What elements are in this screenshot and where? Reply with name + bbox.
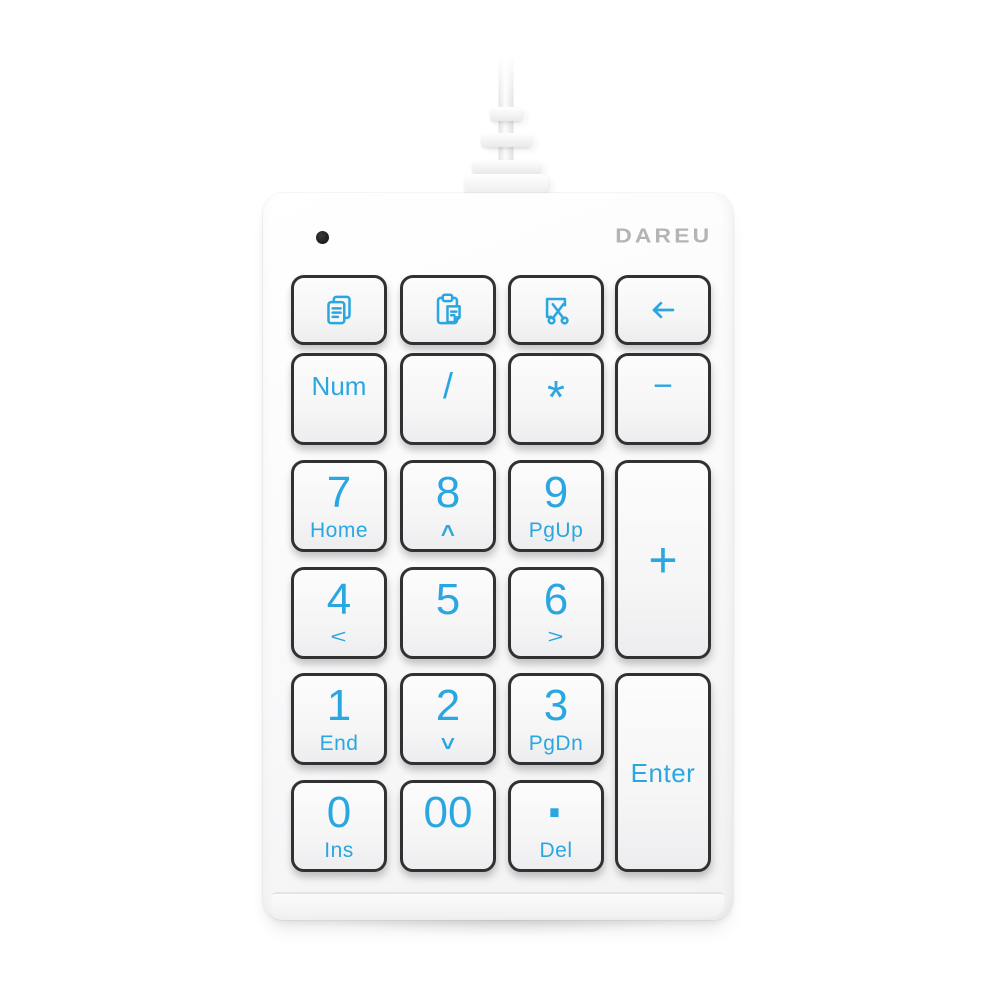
key-decimal[interactable]: ·Del bbox=[508, 780, 604, 872]
key-9[interactable]: 9PgUp bbox=[508, 460, 604, 552]
key-label: 3 bbox=[544, 683, 568, 729]
key-7[interactable]: 7Home bbox=[291, 460, 387, 552]
key-grid: Num/*−7Home8∧9PgUp+4<56>1End2∨3PgDnEnter… bbox=[263, 193, 733, 920]
key-multiply[interactable]: * bbox=[508, 353, 604, 445]
key-label: 4 bbox=[327, 577, 351, 623]
key-sublabel: Ins bbox=[324, 836, 354, 864]
cable-strain-relief-rib bbox=[472, 160, 540, 174]
key-label: 9 bbox=[544, 470, 568, 516]
key-cut[interactable] bbox=[508, 275, 604, 345]
key-4[interactable]: 4< bbox=[291, 567, 387, 659]
key-2[interactable]: 2∨ bbox=[400, 673, 496, 765]
cable-strain-relief-rib bbox=[490, 107, 522, 121]
cut-icon bbox=[535, 289, 577, 331]
key-sublabel: End bbox=[320, 729, 359, 757]
key-label: 0 bbox=[327, 790, 351, 836]
usb-cable bbox=[462, 56, 550, 198]
key-sublabel: < bbox=[331, 623, 348, 651]
key-paste[interactable] bbox=[400, 275, 496, 345]
key-enter[interactable]: Enter bbox=[615, 673, 711, 872]
key-label: 7 bbox=[327, 470, 351, 516]
key-label: − bbox=[653, 363, 673, 409]
key-minus[interactable]: − bbox=[615, 353, 711, 445]
key-label: + bbox=[648, 535, 677, 585]
key-8[interactable]: 8∧ bbox=[400, 460, 496, 552]
key-label: 00 bbox=[424, 790, 473, 836]
key-sublabel: PgUp bbox=[529, 516, 584, 544]
copy-icon bbox=[318, 289, 360, 331]
key-num-lock[interactable]: Num bbox=[291, 353, 387, 445]
key-label: 5 bbox=[436, 577, 460, 623]
key-double-zero[interactable]: 00 bbox=[400, 780, 496, 872]
key-label: 1 bbox=[327, 683, 351, 729]
cable-strain-relief-rib bbox=[481, 133, 531, 147]
key-label: Num bbox=[312, 363, 367, 409]
key-sublabel: > bbox=[548, 623, 565, 651]
keypad-body: DAREU Num/*−7Home8∧9PgUp+4<56>1End2∨3PgD… bbox=[263, 193, 733, 920]
key-label: / bbox=[443, 363, 453, 409]
key-label: * bbox=[547, 374, 565, 420]
key-1[interactable]: 1End bbox=[291, 673, 387, 765]
key-divide[interactable]: / bbox=[400, 353, 496, 445]
key-label: 8 bbox=[436, 470, 460, 516]
key-label: · bbox=[546, 790, 565, 836]
backspace-icon bbox=[642, 289, 684, 331]
key-label: 6 bbox=[544, 577, 568, 623]
key-backspace[interactable] bbox=[615, 275, 711, 345]
key-plus[interactable]: + bbox=[615, 460, 711, 659]
paste-icon bbox=[427, 289, 469, 331]
key-label: Enter bbox=[631, 760, 696, 786]
key-sublabel: Del bbox=[539, 836, 572, 864]
key-sublabel: ∧ bbox=[438, 516, 459, 544]
key-copy[interactable] bbox=[291, 275, 387, 345]
key-sublabel: ∨ bbox=[438, 729, 459, 757]
key-0[interactable]: 0Ins bbox=[291, 780, 387, 872]
key-5[interactable]: 5 bbox=[400, 567, 496, 659]
key-3[interactable]: 3PgDn bbox=[508, 673, 604, 765]
key-sublabel: PgDn bbox=[529, 729, 584, 757]
key-label: 2 bbox=[436, 683, 460, 729]
product-photo: DAREU Num/*−7Home8∧9PgUp+4<56>1End2∨3PgD… bbox=[0, 0, 1000, 1000]
key-6[interactable]: 6> bbox=[508, 567, 604, 659]
key-sublabel: Home bbox=[310, 516, 368, 544]
